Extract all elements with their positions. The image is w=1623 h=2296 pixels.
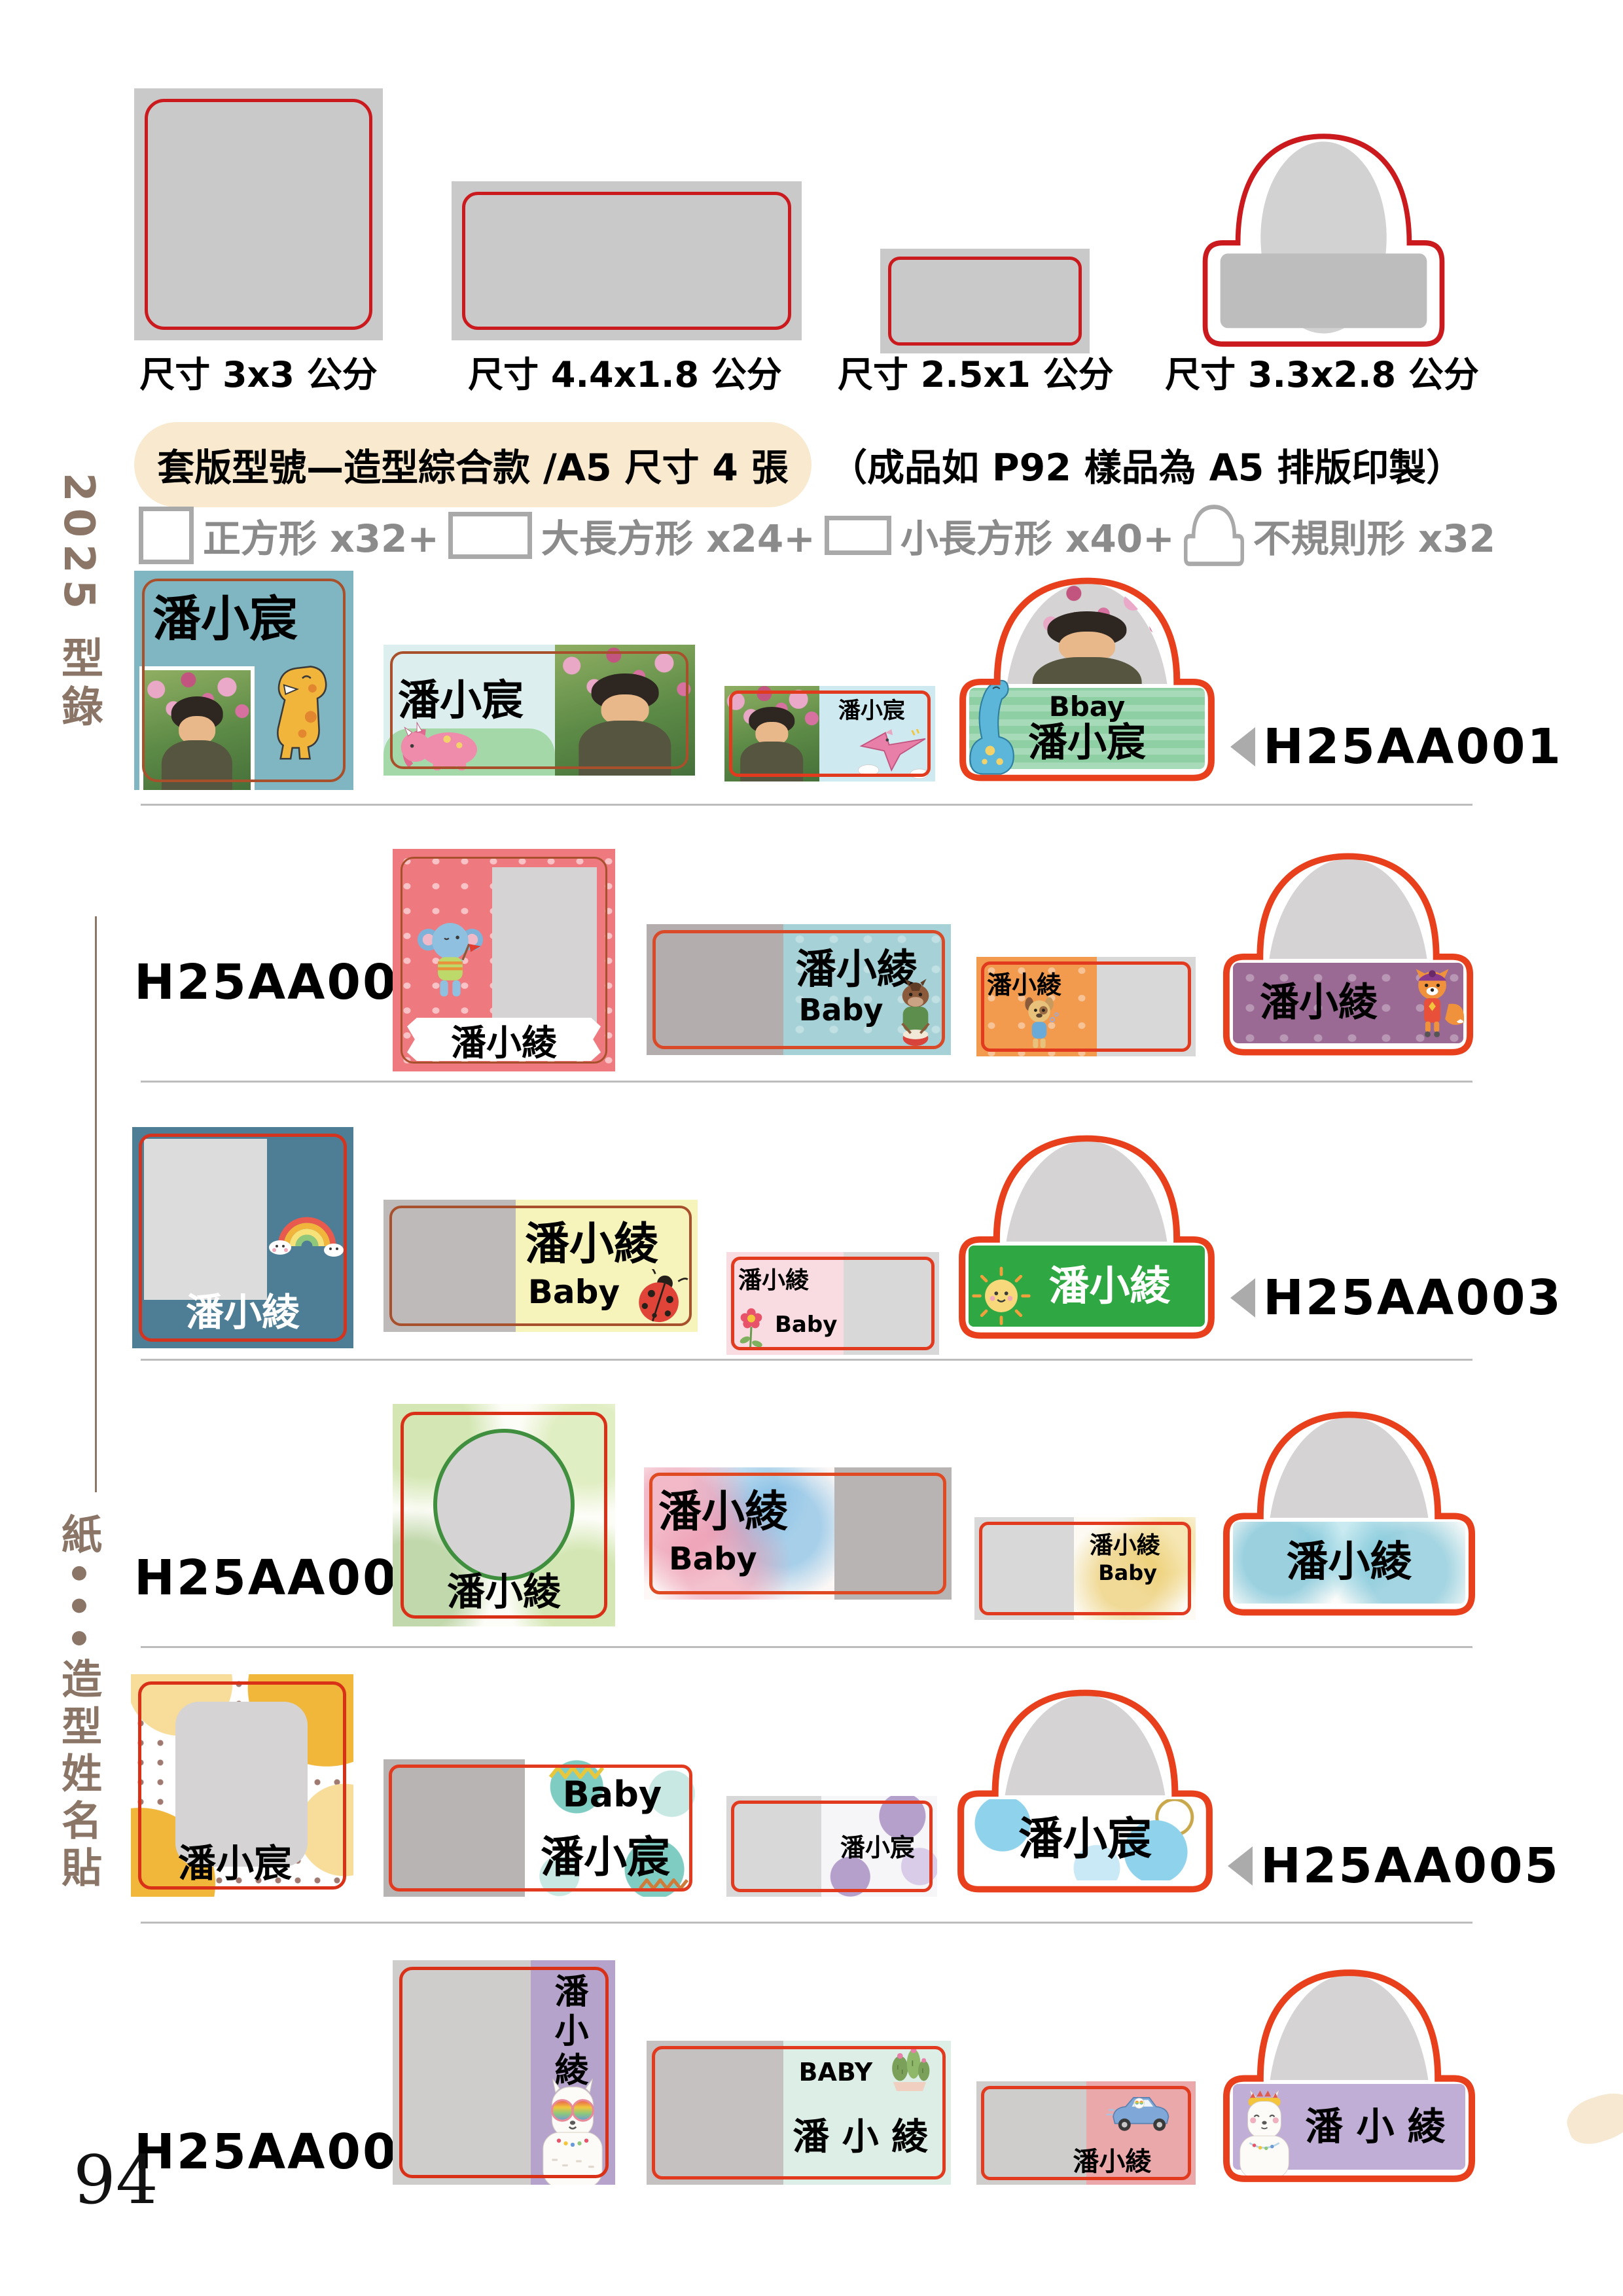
irregular-shape-icon: [1184, 504, 1244, 567]
sticker-small-rect-sample: 潘小綾 Baby: [974, 1517, 1196, 1620]
sticker-irregular-sample: Bbay 潘小宸: [955, 571, 1219, 788]
sticker-irregular-sample: 潘小綾: [1219, 1405, 1480, 1623]
square-shape-icon: [139, 507, 194, 564]
sticker-name: 潘小綾: [1090, 1526, 1160, 1560]
product-code-text: H25AA005: [1260, 1838, 1560, 1894]
sticker-large-rect-sample: Baby 潘小宸: [383, 1759, 698, 1897]
sticker-square-sample: 潘小綾: [393, 1404, 615, 1626]
sticker-name: 潘小綾: [738, 1261, 809, 1295]
flower-icon: [734, 1304, 768, 1352]
photo-placeholder: [383, 1200, 516, 1332]
sticker-name: 潘小綾: [544, 1973, 593, 2091]
count-square: 正方形 x32+: [203, 508, 439, 563]
yellow-dinosaur-icon: [260, 648, 344, 772]
product-code-text: H25AA004: [134, 1550, 434, 1606]
product-code: H25AA005: [1228, 1838, 1560, 1894]
blue-car-llama-icon: [1105, 2087, 1179, 2136]
dog-icon: [1014, 994, 1064, 1054]
sticker-name: 潘小宸: [840, 1827, 915, 1863]
template-cut-line: [145, 99, 372, 330]
sticker-subtitle: Baby: [528, 1273, 620, 1311]
cut-line: [1219, 846, 1478, 1062]
sidebar-divider-line: [95, 916, 97, 1492]
sticker-name: 潘 小 綾: [793, 2108, 928, 2161]
large-rect-shape-icon: [448, 512, 532, 559]
small-rect-shape-icon: [825, 516, 891, 555]
llama-sunglasses-icon: [534, 2077, 611, 2185]
count-large-rect: 大長方形 x24+: [541, 508, 815, 563]
ladybug-icon: [630, 1269, 690, 1327]
sticker-large-rect-sample: 潘小宸: [383, 645, 695, 776]
zigzag-decoration: [637, 1878, 690, 1890]
pink-pterodactyl-icon: [854, 725, 933, 780]
sticker-name: 潘小綾: [447, 1561, 561, 1616]
sticker-subtitle: Baby: [799, 992, 883, 1028]
decorative-blob: [1561, 2086, 1623, 2151]
sticker-irregular-sample: 潘小綾: [1219, 846, 1478, 1062]
sticker-large-rect-sample: 潘小綾 Baby: [647, 924, 951, 1055]
horse-drummer-icon: [884, 975, 947, 1054]
sticker-subtitle: Baby: [1098, 1560, 1157, 1585]
product-code-text: H25AA002: [134, 954, 434, 1011]
sample-photo: [555, 645, 695, 776]
catalog-page: 2025 型錄 紙•••造型姓名貼 尺寸 3x3 公分 尺寸 4.4x1.8 公…: [0, 0, 1623, 2296]
sticker-name: 潘小綾: [525, 1208, 658, 1272]
row-divider: [141, 1081, 1472, 1083]
template-cut-line: [462, 192, 791, 330]
series-title-pill: 套版型號—造型綜合款 /A5 尺寸 4 張: [134, 422, 811, 507]
sticker-name: 潘小綾: [451, 1014, 557, 1066]
sticker-square-sample: 潘小宸: [131, 1674, 353, 1897]
sticker-name: 潘小綾: [658, 1477, 788, 1539]
size-label-large-rect: 尺寸 4.4x1.8 公分: [412, 346, 838, 397]
cut-line: [953, 1683, 1217, 1899]
page-number: 94: [73, 2142, 158, 2219]
sticker-large-rect-sample: 潘小綾 Baby: [644, 1467, 952, 1600]
sidebar-category-label: 紙•••造型姓名貼: [58, 1513, 98, 1893]
row-divider: [141, 804, 1472, 806]
row-divider: [141, 1922, 1472, 1924]
sticker-small-rect-sample: 潘小宸: [724, 686, 935, 781]
sticker-name: 潘小宸: [178, 1833, 292, 1888]
sample-photo: [139, 666, 255, 790]
sticker-small-rect-sample: 潘小宸: [726, 1796, 937, 1897]
sticker-subtitle: Baby: [775, 1312, 837, 1338]
sticker-name: 潘小宸: [541, 1822, 670, 1885]
size-template-large-rect: [452, 181, 802, 340]
photo-placeholder: [647, 924, 783, 1055]
template-cut-line: [888, 257, 1082, 346]
sticker-small-rect-sample: 潘小綾: [976, 957, 1196, 1056]
sticker-irregular-sample: 潘 小 綾: [1219, 1962, 1480, 2189]
count-small-rect: 小長方形 x40+: [901, 508, 1175, 563]
size-label-square: 尺寸 3x3 公分: [98, 346, 419, 397]
product-code-text: H25AA003: [1263, 1270, 1563, 1326]
arrow-left-icon: [1230, 727, 1255, 766]
irregular-template-shape: [1198, 126, 1450, 355]
product-code: H25AA003: [1230, 1270, 1563, 1326]
sticker-small-rect-sample: 潘小綾: [976, 2081, 1196, 2185]
product-code: H25AA001: [1230, 719, 1563, 775]
rainbow-clouds-icon: [264, 1190, 349, 1263]
sticker-irregular-sample: 潘小綾: [954, 1128, 1219, 1346]
cactus-icon: [884, 2046, 935, 2093]
name-banner: 潘小綾: [407, 1018, 601, 1061]
sticker-name: 潘小宸: [838, 692, 905, 725]
sticker-irregular-sample: 潘小宸: [953, 1683, 1217, 1899]
product-code-text: H25AA006: [134, 2124, 434, 2180]
sticker-name: 潘小綾: [1073, 2140, 1151, 2178]
size-label-small-rect: 尺寸 2.5x1 公分: [838, 346, 1113, 397]
row-divider: [141, 1646, 1472, 1648]
cut-line: [1219, 1405, 1480, 1623]
sticker-square-sample: 潘小綾: [393, 1960, 615, 2185]
elephant-icon: [414, 909, 487, 1007]
sticker-square-sample: 潘小綾: [393, 849, 615, 1071]
series-title: 套版型號—造型綜合款 /A5 尺寸 4 張: [157, 438, 789, 492]
sticker-square-sample: 潘小宸: [134, 571, 353, 790]
sheet-contents-line: 正方形 x32+ 大長方形 x24+ 小長方形 x40+ 不規則形 x32: [139, 496, 1495, 575]
cut-line: [1219, 1962, 1480, 2189]
sample-photo: [724, 686, 819, 781]
cut-line: [955, 571, 1219, 788]
sticker-small-rect-sample: 潘小綾 Baby: [726, 1252, 939, 1355]
sticker-square-sample: 潘小綾: [132, 1127, 353, 1348]
series-note: （成品如 P92 樣品為 A5 排版印製）: [830, 422, 1463, 507]
size-template-square: [134, 88, 383, 340]
photo-placeholder: [144, 1139, 267, 1300]
photo-placeholder: [433, 1429, 575, 1581]
count-irregular: 不規則形 x32: [1253, 508, 1495, 563]
sidebar-catalog-year: 2025 型錄: [58, 473, 99, 733]
photo-placeholder: [492, 867, 597, 1027]
cut-line: [954, 1128, 1219, 1346]
sticker-subtitle: Baby: [669, 1541, 757, 1577]
arrow-left-icon: [1228, 1846, 1253, 1886]
size-template-small-rect: [880, 249, 1090, 353]
sticker-name: 潘小綾: [186, 1282, 300, 1336]
pink-dinosaur-icon: [389, 711, 487, 773]
sticker-subtitle: Baby: [563, 1774, 662, 1815]
arrow-left-icon: [1230, 1278, 1255, 1318]
sticker-subtitle: BABY: [799, 2058, 873, 2087]
sticker-large-rect-sample: BABY 潘 小 綾: [647, 2041, 951, 2185]
product-code-text: H25AA001: [1263, 719, 1563, 775]
row-divider: [141, 1359, 1472, 1361]
size-label-irregular: 尺寸 3.3x2.8 公分: [1145, 346, 1499, 397]
size-template-irregular: [1198, 126, 1450, 355]
sticker-name: 潘小宸: [152, 580, 298, 650]
sticker-large-rect-sample: 潘小綾 Baby: [383, 1200, 698, 1332]
